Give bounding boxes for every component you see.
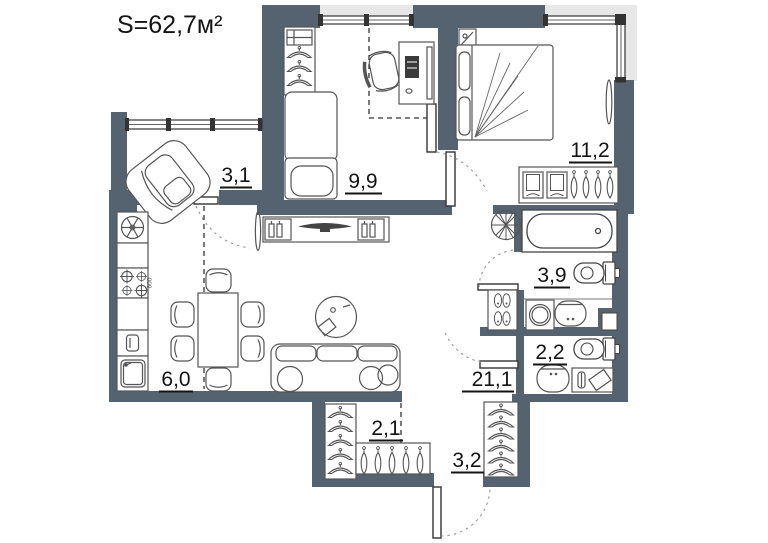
room-label-bathroom: 3,9 [537, 264, 566, 287]
window-mullion [364, 14, 369, 26]
toilet-icon [574, 338, 620, 360]
window-mullion [166, 118, 171, 131]
window-mullion [615, 14, 626, 25]
wall-segment [257, 200, 452, 215]
dresser-wardrobe [519, 167, 618, 203]
sofa [271, 344, 400, 392]
tv-base [320, 228, 330, 232]
mirror-icon [606, 80, 612, 124]
counter-cabinet [117, 298, 148, 330]
dining-chair [241, 336, 264, 361]
room-label-hallway: 3,2 [452, 449, 481, 472]
wall-segment [262, 5, 284, 215]
bedroom-door-arc [437, 152, 487, 191]
band-right [624, 17, 637, 81]
plant-icon [492, 211, 521, 240]
double-bed [456, 45, 553, 140]
dining-chair [206, 368, 231, 391]
living-room-furniture [255, 212, 400, 393]
loggia-window [125, 118, 262, 131]
room-label-living-kitchen: 21,1 [472, 368, 513, 391]
wc-cabinet [572, 368, 613, 392]
wall-segment [413, 5, 545, 28]
window-mullion [125, 118, 129, 131]
dining-chair [171, 336, 194, 361]
stove-icon: 600 [117, 268, 154, 298]
dining-chair [241, 302, 264, 327]
wall-segment [438, 28, 458, 150]
counter-cabinet [117, 243, 148, 268]
dining-chair [206, 269, 231, 292]
monitor-icon [405, 56, 419, 78]
fridge-icon [117, 212, 148, 243]
window-mullion [543, 14, 548, 26]
kitchen-units: 600 [117, 212, 154, 391]
bathtub [522, 210, 617, 252]
room-label-toilet: 2,2 [535, 341, 564, 364]
hallway-wardrobe [484, 402, 518, 477]
window-mullion [318, 14, 323, 26]
kitchen-sink-icon [117, 356, 148, 391]
tv-stand [263, 217, 389, 242]
room-label-wardrobe: 2,1 [371, 417, 400, 440]
dining-chair [171, 302, 194, 327]
entry-door-arc [441, 487, 490, 536]
wall-segment [109, 391, 402, 402]
floor-mirror-icon [255, 212, 260, 251]
room-label-loggia: 3,1 [221, 164, 250, 187]
window-mullion [258, 118, 262, 131]
office-chair [361, 49, 401, 94]
stove-width-dimension: 600 [147, 277, 154, 288]
coffee-table [316, 297, 357, 338]
bedroom-window [318, 14, 414, 26]
shoe-cabinet [488, 290, 517, 330]
room-label-master-bedroom: 11,2 [570, 139, 609, 162]
corner-window [543, 14, 626, 82]
bathroom-door-arc [479, 250, 517, 287]
bedroom-door-leaf [427, 104, 436, 152]
toilet-door-leaf [480, 361, 518, 368]
dining-table [198, 293, 238, 367]
washing-machine-icon [526, 300, 554, 330]
toilet-door-arc [444, 331, 481, 362]
master-bedroom-furniture [456, 29, 618, 203]
vent-shaft [602, 313, 617, 330]
toilet-icon [574, 262, 620, 284]
total-area-label: S=62,7м² [117, 11, 222, 39]
bathroom-door-leaf [478, 284, 518, 290]
window-mullion [409, 14, 414, 26]
room-label-bedroom: 9,9 [348, 170, 377, 193]
entry-door-leaf [433, 487, 441, 538]
room-label-kitchen-zone: 6,0 [161, 368, 190, 391]
desk [399, 42, 434, 104]
wardrobe-small [284, 27, 315, 95]
appliance-icon [117, 330, 148, 356]
single-bed [285, 92, 337, 199]
wc-sink-icon [537, 365, 569, 392]
bathroom-sink-icon [555, 301, 586, 326]
window-mullion [615, 77, 626, 82]
master-bedroom-door-leaf [446, 152, 455, 206]
wall-segment [111, 112, 127, 198]
window-mullion [210, 118, 215, 131]
floor-plan: 600 [0, 0, 768, 543]
